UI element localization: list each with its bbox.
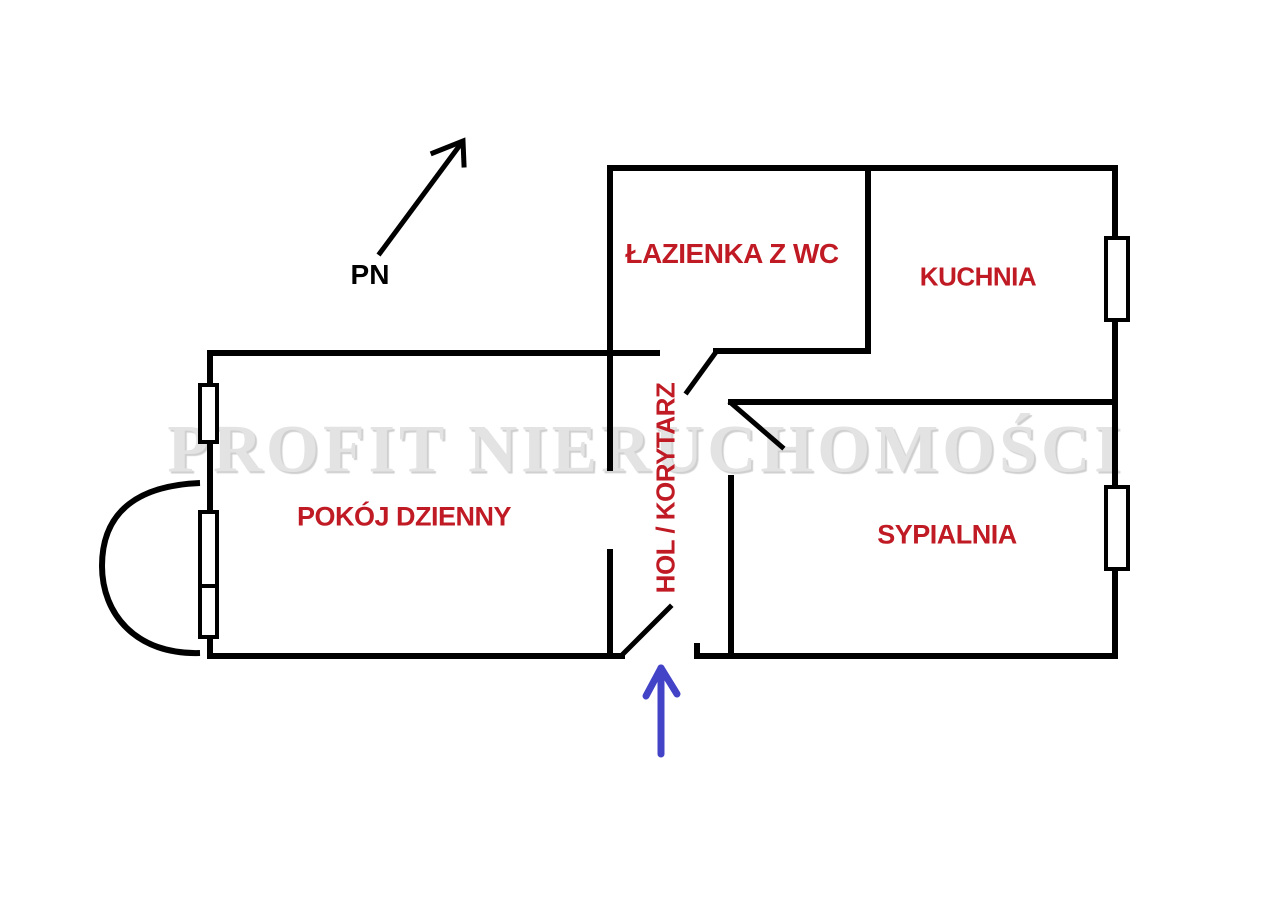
floorplan-canvas: PROFIT NIERUCHOMOŚCI — [0, 0, 1280, 905]
room-label-sypialnia: SYPIALNIA — [877, 520, 1017, 551]
door-swing-entrance — [622, 607, 670, 655]
balcony-arc — [102, 483, 200, 653]
room-label-hol-korytarz: HOL / KORYTARZ — [651, 383, 682, 594]
north-label: PN — [351, 259, 390, 291]
balcony-door-upper-icon — [200, 512, 217, 587]
room-label-kuchnia: KUCHNIA — [920, 262, 1036, 293]
room-label-pokoj-dzienny: POKÓJ DZIENNY — [297, 502, 511, 533]
north-arrow-icon — [380, 141, 464, 253]
door-swings — [622, 352, 782, 655]
window-living-icon — [200, 385, 217, 442]
floorplan-drawing — [0, 0, 1280, 905]
door-swing-bathroom — [687, 352, 716, 392]
window-bedroom-icon — [1106, 487, 1128, 569]
door-swing-bedroom — [731, 403, 782, 447]
balcony-door-lower-icon — [200, 586, 217, 637]
window-kitchen-icon — [1106, 238, 1128, 320]
room-label-lazienka: ŁAZIENKA Z WC — [625, 238, 838, 270]
entrance-arrow-icon — [646, 668, 677, 754]
